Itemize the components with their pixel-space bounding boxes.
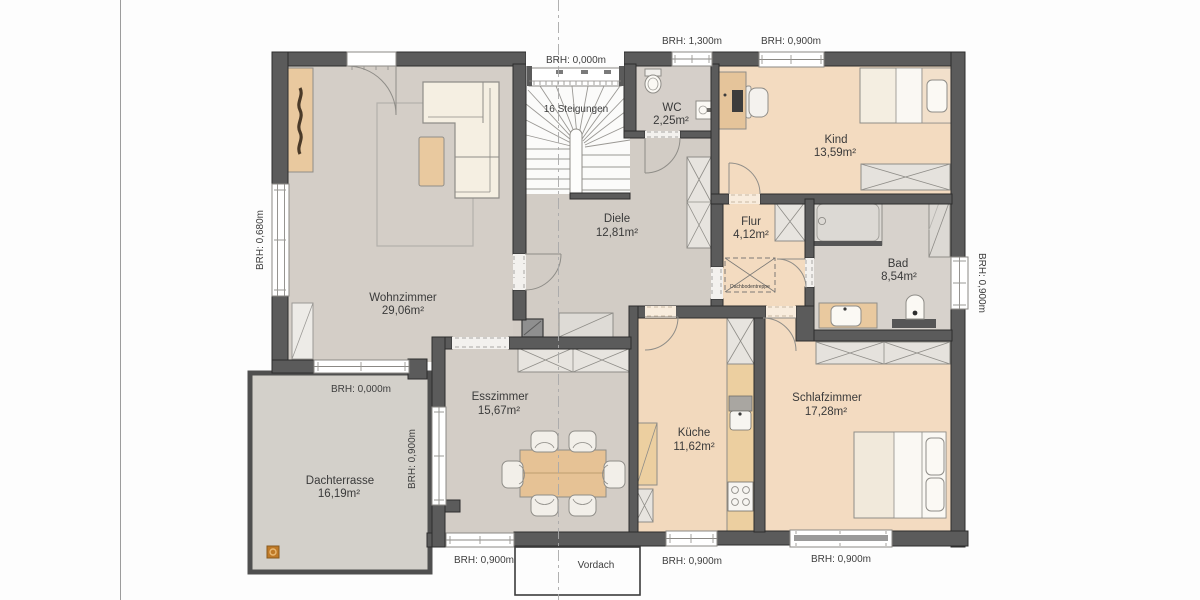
svg-text:17,28m²: 17,28m² xyxy=(805,406,847,418)
svg-text:12,81m²: 12,81m² xyxy=(596,227,638,239)
svg-text:BRH: 0,000m: BRH: 0,000m xyxy=(331,384,391,395)
svg-text:Flur: Flur xyxy=(741,216,761,228)
svg-text:Diele: Diele xyxy=(604,213,630,225)
svg-text:Bad: Bad xyxy=(888,258,908,270)
svg-text:Schlafzimmer: Schlafzimmer xyxy=(792,392,862,404)
svg-text:Wohnzimmer: Wohnzimmer xyxy=(369,292,437,304)
svg-text:BRH: 0,900m: BRH: 0,900m xyxy=(811,554,871,565)
svg-text:WC: WC xyxy=(662,102,681,114)
svg-text:15,67m²: 15,67m² xyxy=(478,405,520,417)
svg-text:16 Steigungen: 16 Steigungen xyxy=(544,104,609,115)
svg-text:BRH: 0,900m: BRH: 0,900m xyxy=(407,429,418,489)
svg-text:Kind: Kind xyxy=(824,134,847,146)
svg-text:16,19m²: 16,19m² xyxy=(318,488,360,500)
svg-text:BRH: 0,680m: BRH: 0,680m xyxy=(255,210,266,270)
svg-text:2,25m²: 2,25m² xyxy=(653,115,689,127)
svg-text:BRH: 0,900m: BRH: 0,900m xyxy=(454,555,514,566)
svg-text:Esszimmer: Esszimmer xyxy=(472,391,529,403)
svg-text:Dachbodentreppe: Dachbodentreppe xyxy=(730,284,770,290)
svg-text:Dachterrasse: Dachterrasse xyxy=(306,475,374,487)
svg-text:13,59m²: 13,59m² xyxy=(814,147,856,159)
svg-text:Vordach: Vordach xyxy=(578,560,615,571)
svg-text:8,54m²: 8,54m² xyxy=(881,271,917,283)
svg-text:4,12m²: 4,12m² xyxy=(733,229,769,241)
svg-text:BRH: 0,900m: BRH: 0,900m xyxy=(761,36,821,47)
svg-text:BRH: 0,000m: BRH: 0,000m xyxy=(546,55,606,66)
svg-text:29,06m²: 29,06m² xyxy=(382,305,424,317)
svg-text:BRH: 0,900m: BRH: 0,900m xyxy=(976,253,987,313)
svg-text:BRH: 0,900m: BRH: 0,900m xyxy=(662,556,722,567)
svg-text:BRH: 1,300m: BRH: 1,300m xyxy=(662,36,722,47)
svg-text:Küche: Küche xyxy=(678,427,711,439)
svg-text:11,62m²: 11,62m² xyxy=(673,441,715,453)
